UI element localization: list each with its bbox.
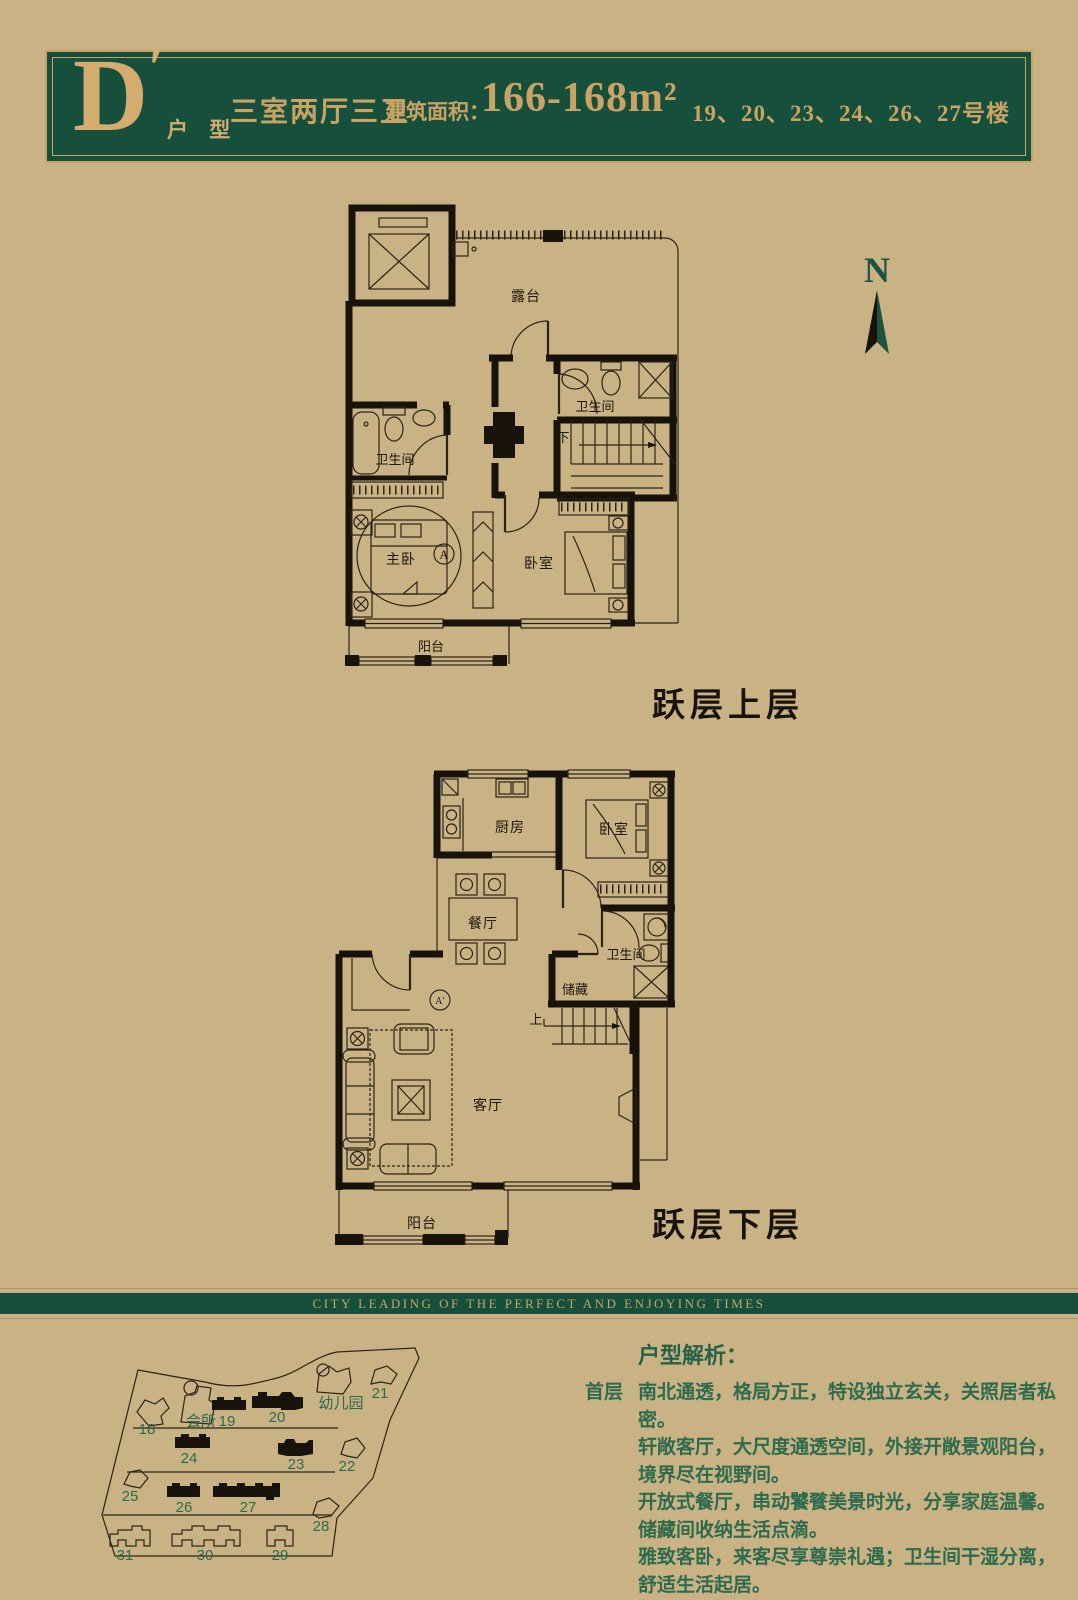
area-value: 166-168m²	[481, 74, 678, 122]
lower-balcony-label: 阳台	[407, 1216, 437, 1232]
bath-right-label: 卫生间	[575, 399, 614, 414]
elevator-shaft	[352, 208, 452, 303]
analysis-section-first-floor: 首层 南北通透，格局方正，特设独立玄关，关照居者私密。 轩敞客厅，大尺度通透空间…	[585, 1379, 1073, 1599]
site-label-clubhouse: 会所	[186, 1413, 216, 1430]
master-bedroom: 主卧 A	[351, 506, 493, 617]
terrace-door	[489, 321, 561, 358]
stairs-down-label: 下	[556, 430, 569, 445]
compass-north-label: N	[845, 252, 909, 288]
site-buildings-outline	[110, 1364, 397, 1546]
site-label-25: 25	[122, 1488, 139, 1505]
sink-icon	[562, 369, 588, 389]
unit-layout: 三室两厅三卫	[230, 90, 410, 130]
stairs-down: 下	[556, 420, 677, 498]
upper-floor-plan: 露台 卫生间	[343, 202, 683, 672]
armchair-icon	[394, 1024, 434, 1054]
bedroom-label: 卧室	[524, 555, 554, 572]
upper-balcony-label: 阳台	[418, 639, 444, 654]
dining-room: 餐厅	[449, 874, 517, 964]
analysis-line: 雅致客卧，来客尽享尊崇礼遇；卫生间干湿分离，舒适生活起居。	[638, 1544, 1073, 1599]
site-label-21: 21	[372, 1385, 389, 1402]
analysis-line: 轩敞客厅，大尺度通透空间，外接开敞景观阳台，境界尽在视野间。	[638, 1434, 1073, 1489]
site-map: 18 会所 19 20 幼儿园 21 24 23 22 25 26 27 28 …	[85, 1332, 455, 1587]
site-label-27: 27	[240, 1499, 257, 1516]
divider-line	[0, 1288, 1078, 1289]
lower-floor-plan: 厨房 卧室	[330, 758, 680, 1258]
master-wardrobe	[351, 482, 443, 498]
compass-arrow-icon	[845, 288, 909, 360]
site-label-23: 23	[288, 1456, 305, 1473]
toilet-icon	[601, 362, 621, 395]
building-numbers: 19、20、23、24、26、27号楼	[692, 94, 1010, 128]
master-label: 主卧	[386, 552, 416, 568]
upper-left-bathroom: 卫生间	[349, 405, 449, 478]
site-label-kindergarten: 幼儿园	[318, 1395, 363, 1412]
site-label-18: 18	[139, 1421, 156, 1438]
bedroom-wall	[559, 774, 675, 908]
storage-room: 储藏	[548, 934, 675, 1004]
living-label: 客厅	[473, 1097, 503, 1114]
nightstand-icon	[351, 510, 372, 535]
site-buildings-filled	[167, 1392, 313, 1500]
kitchen-label: 厨房	[495, 820, 525, 836]
analysis-line: 南北通透，格局方正，特设独立玄关，关照居者私密。	[638, 1379, 1073, 1434]
kitchen: 厨房	[437, 779, 556, 857]
south-wall	[339, 1182, 640, 1190]
coffee-table-icon	[392, 1080, 430, 1120]
site-boundary	[102, 1348, 419, 1556]
site-label-20: 20	[269, 1409, 286, 1426]
site-kindergarten-shape	[317, 1364, 351, 1394]
terrace-label: 露台	[511, 289, 541, 305]
bath-left-label: 卫生间	[375, 452, 414, 467]
divider-line	[0, 1318, 1078, 1319]
plant-table-icon	[347, 1148, 368, 1169]
site-label-31: 31	[117, 1547, 134, 1564]
analysis-tag: 首层	[585, 1379, 638, 1599]
lower-bedroom-label: 卧室	[599, 821, 629, 838]
site-label-22: 22	[339, 1458, 356, 1475]
svg-text:A: A	[439, 547, 449, 562]
bath-label: 卫生间	[606, 947, 645, 962]
plant-table-icon	[347, 1028, 368, 1049]
site-label-19: 19	[219, 1413, 236, 1430]
page: D′ 户 型 三室两厅三卫 建筑面积： 166-168m² 19、20、23、2…	[0, 0, 1078, 1600]
shower-icon	[634, 966, 669, 998]
lower-balcony: 阳台	[335, 1190, 508, 1245]
unit-type-header: D′ 户 型 三室两厅三卫 建筑面积： 166-168m² 19、20、23、2…	[45, 50, 1033, 163]
hall-walls	[484, 358, 524, 498]
nightstand-icon	[650, 860, 668, 876]
upper-right-bathroom: 卫生间	[557, 358, 677, 423]
dining-label: 餐厅	[468, 916, 498, 932]
upper-balcony: 阳台	[345, 626, 509, 666]
washer-icon	[644, 914, 670, 940]
stove-icon	[443, 806, 460, 838]
unit-type-suffix: 户 型	[167, 114, 238, 144]
sink-icon	[413, 410, 435, 426]
site-label-30: 30	[197, 1547, 214, 1564]
upper-plan-caption: 跃层上层	[652, 678, 804, 726]
nightstand-icon	[351, 592, 372, 617]
entry	[339, 855, 443, 1190]
loveseat-icon	[380, 1144, 436, 1174]
sink-icon	[496, 779, 528, 797]
closet	[473, 512, 493, 608]
nightstand-icon	[650, 782, 668, 798]
lower-plan-caption: 跃层下层	[652, 1198, 804, 1246]
lower-bedroom: 卧室	[586, 782, 668, 897]
unit-type-prime: ′	[148, 35, 165, 101]
site-label-28: 28	[313, 1518, 330, 1535]
south-wall	[349, 619, 635, 628]
site-label-26: 26	[176, 1499, 193, 1516]
analysis-line: 开放式餐厅，串动饕餮美景时光，分享家庭温馨。储藏间收纳生活点滴。	[638, 1489, 1073, 1544]
wardrobe	[598, 882, 668, 897]
compass: N	[845, 252, 909, 365]
storage-label: 储藏	[562, 982, 588, 997]
unit-analysis: 户型解析： 首层 南北通透，格局方正，特设独立玄关，关照居者私密。 轩敞客厅，大…	[585, 1338, 1073, 1600]
upper-bedroom: 卧室	[495, 495, 635, 623]
living-room: A′	[343, 990, 667, 1190]
area-label: 建筑面积：	[385, 96, 490, 126]
nightstand-icon	[609, 598, 628, 612]
shower-icon	[639, 362, 672, 398]
toilet-icon	[383, 407, 405, 441]
site-label-29: 29	[272, 1547, 289, 1564]
site-label-24: 24	[181, 1450, 198, 1467]
stairs-up-label: 上	[529, 1012, 542, 1027]
stairs-up: 上	[529, 1004, 633, 1054]
lower-bathroom: 卫生间	[602, 908, 671, 1004]
analysis-heading: 户型解析：	[638, 1338, 1073, 1370]
slogan-banner: CITY LEADING OF THE PERFECT AND ENJOYING…	[0, 1293, 1078, 1314]
unit-type-letter: D′	[73, 38, 165, 148]
nightstand-icon	[609, 516, 628, 530]
svg-text:A′: A′	[435, 996, 444, 1007]
